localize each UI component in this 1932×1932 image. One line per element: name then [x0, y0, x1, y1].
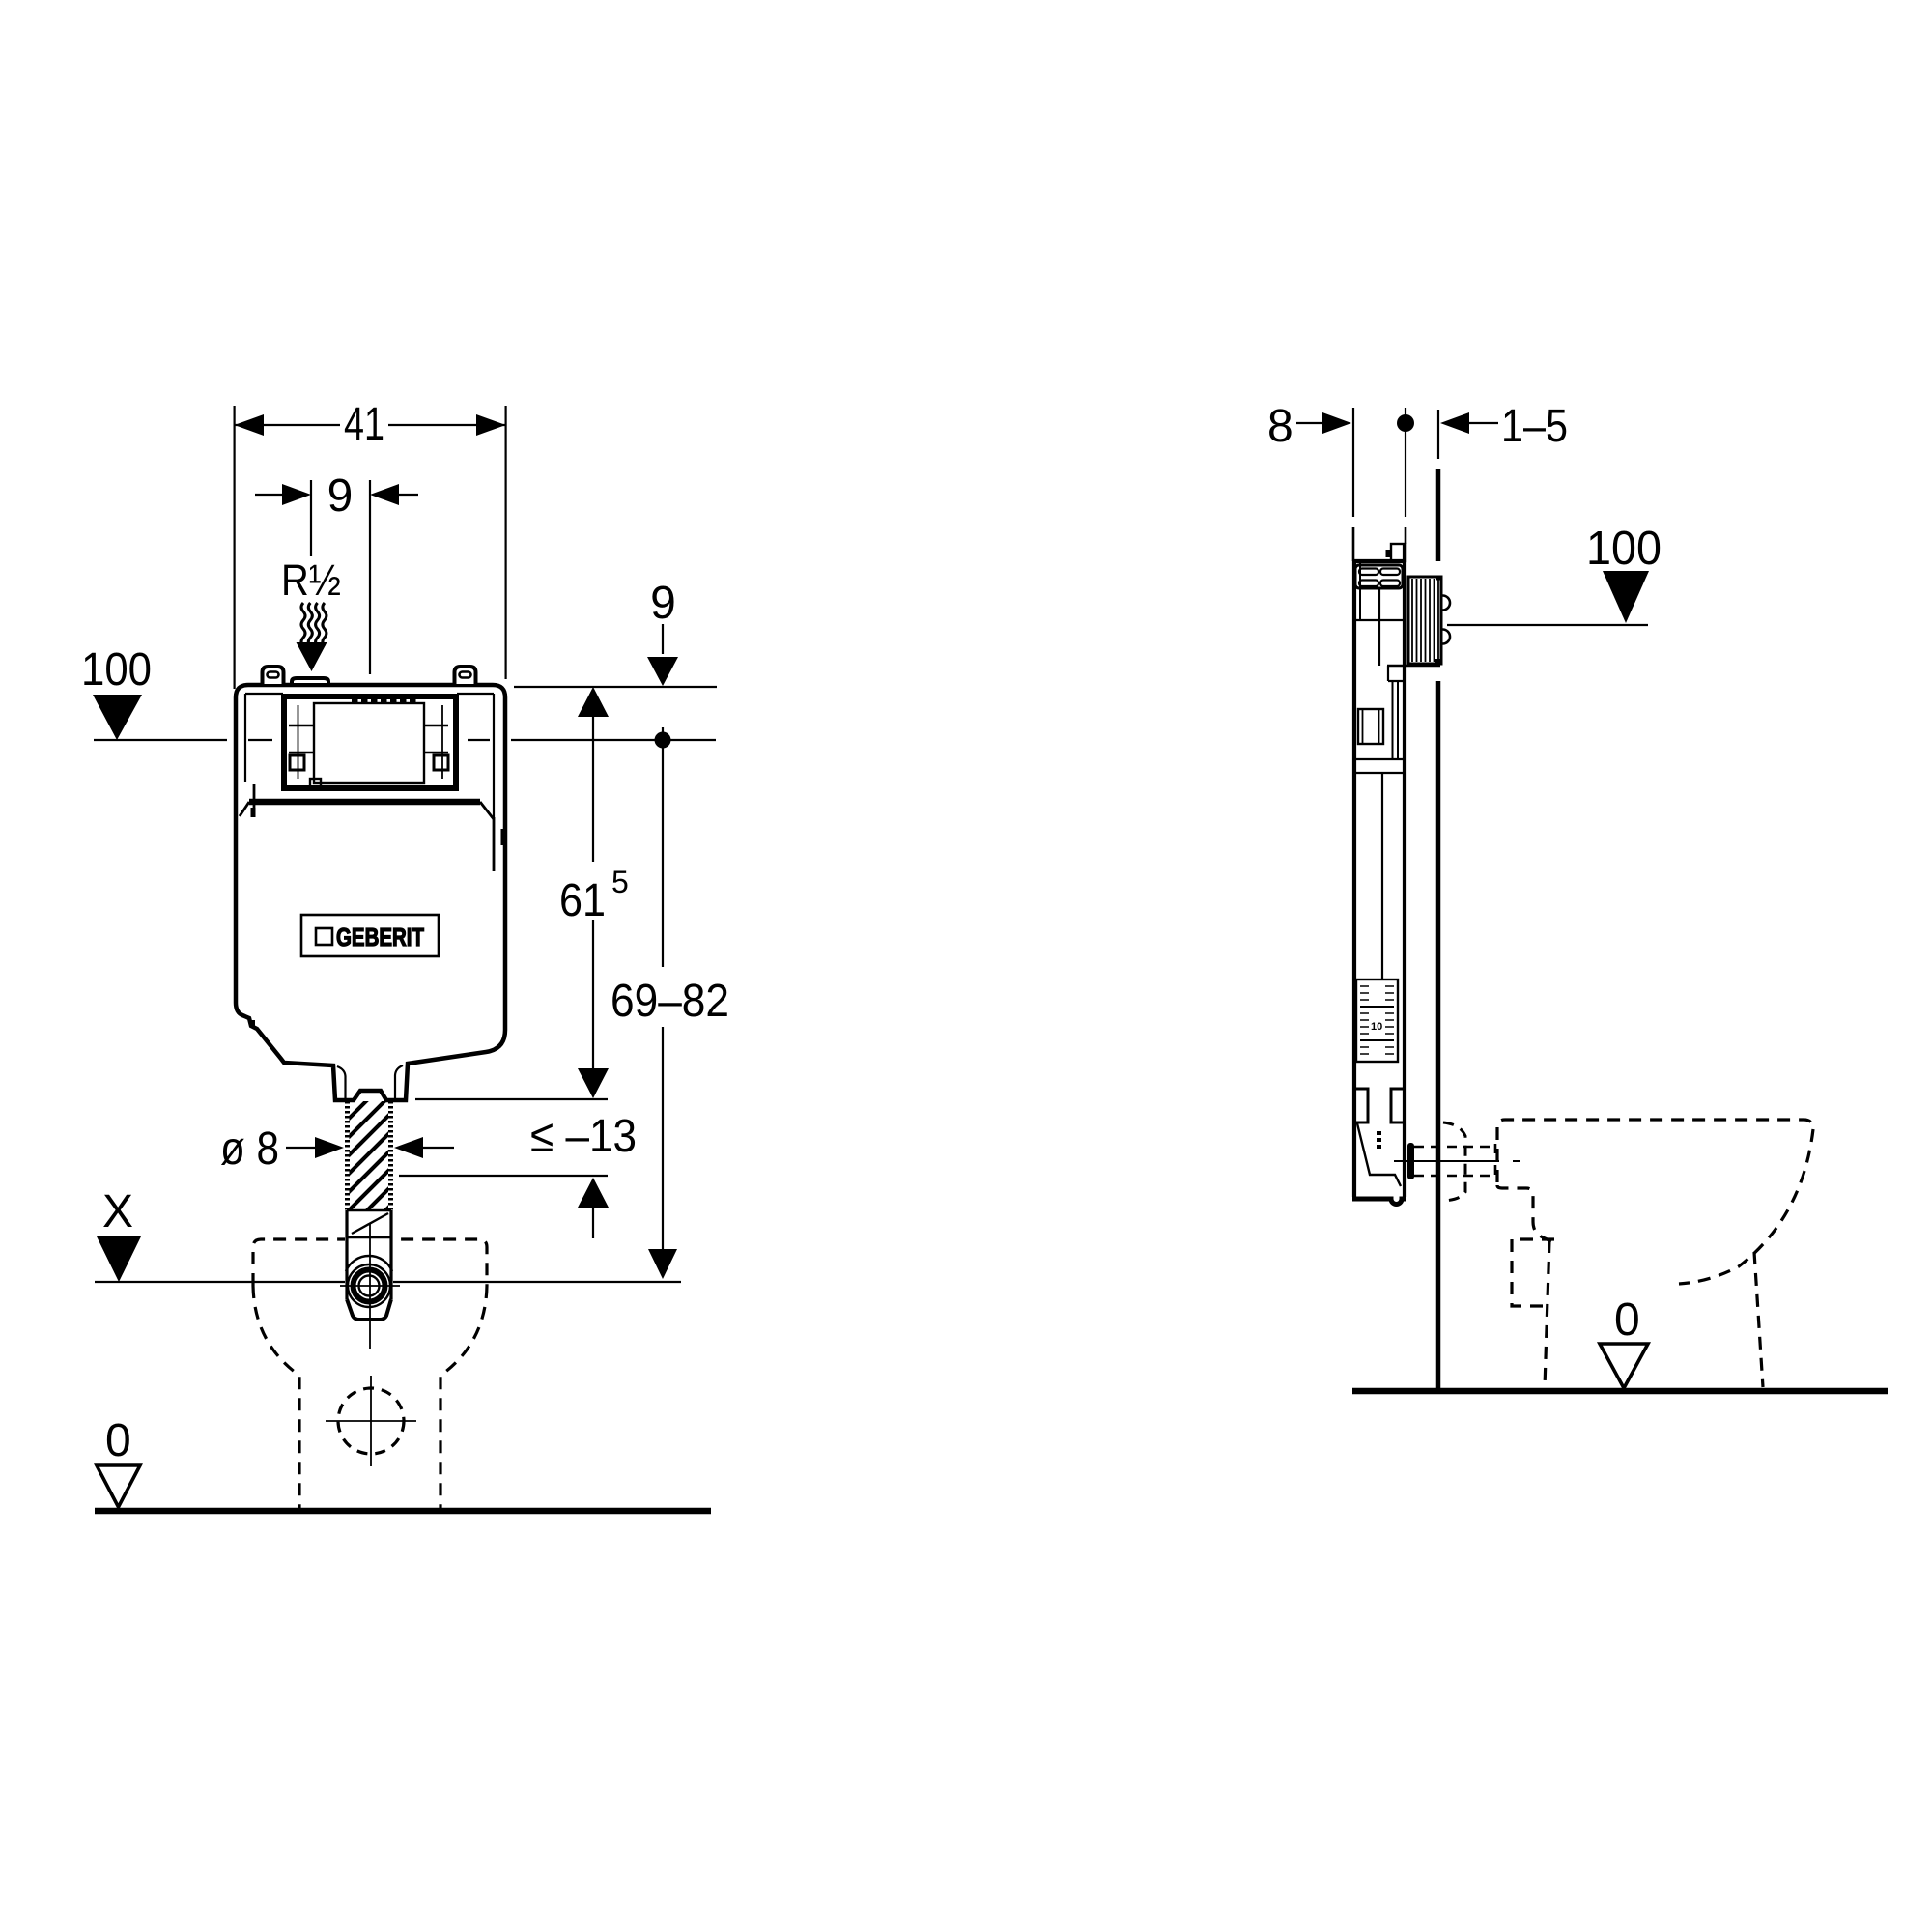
svg-text:0: 0	[1614, 1294, 1640, 1346]
svg-text:GEBERIT: GEBERIT	[336, 924, 424, 952]
svg-text:61: 61	[559, 875, 606, 926]
svg-text:41: 41	[344, 399, 384, 450]
svg-text:R½: R½	[281, 555, 341, 605]
svg-text:8: 8	[1267, 401, 1293, 452]
svg-text:1–5: 1–5	[1501, 401, 1568, 452]
svg-text:9: 9	[327, 470, 354, 522]
svg-text:≤ –13: ≤ –13	[530, 1111, 637, 1162]
svg-text:0: 0	[105, 1415, 131, 1466]
svg-text:100: 100	[81, 644, 152, 696]
svg-text:ø 8: ø 8	[220, 1123, 279, 1175]
svg-text:9: 9	[650, 578, 676, 629]
svg-text:10: 10	[1371, 1021, 1382, 1033]
svg-text:69–82: 69–82	[611, 976, 729, 1027]
svg-text:100: 100	[1586, 523, 1662, 575]
svg-text:5: 5	[611, 865, 629, 899]
svg-text:X: X	[102, 1186, 133, 1237]
